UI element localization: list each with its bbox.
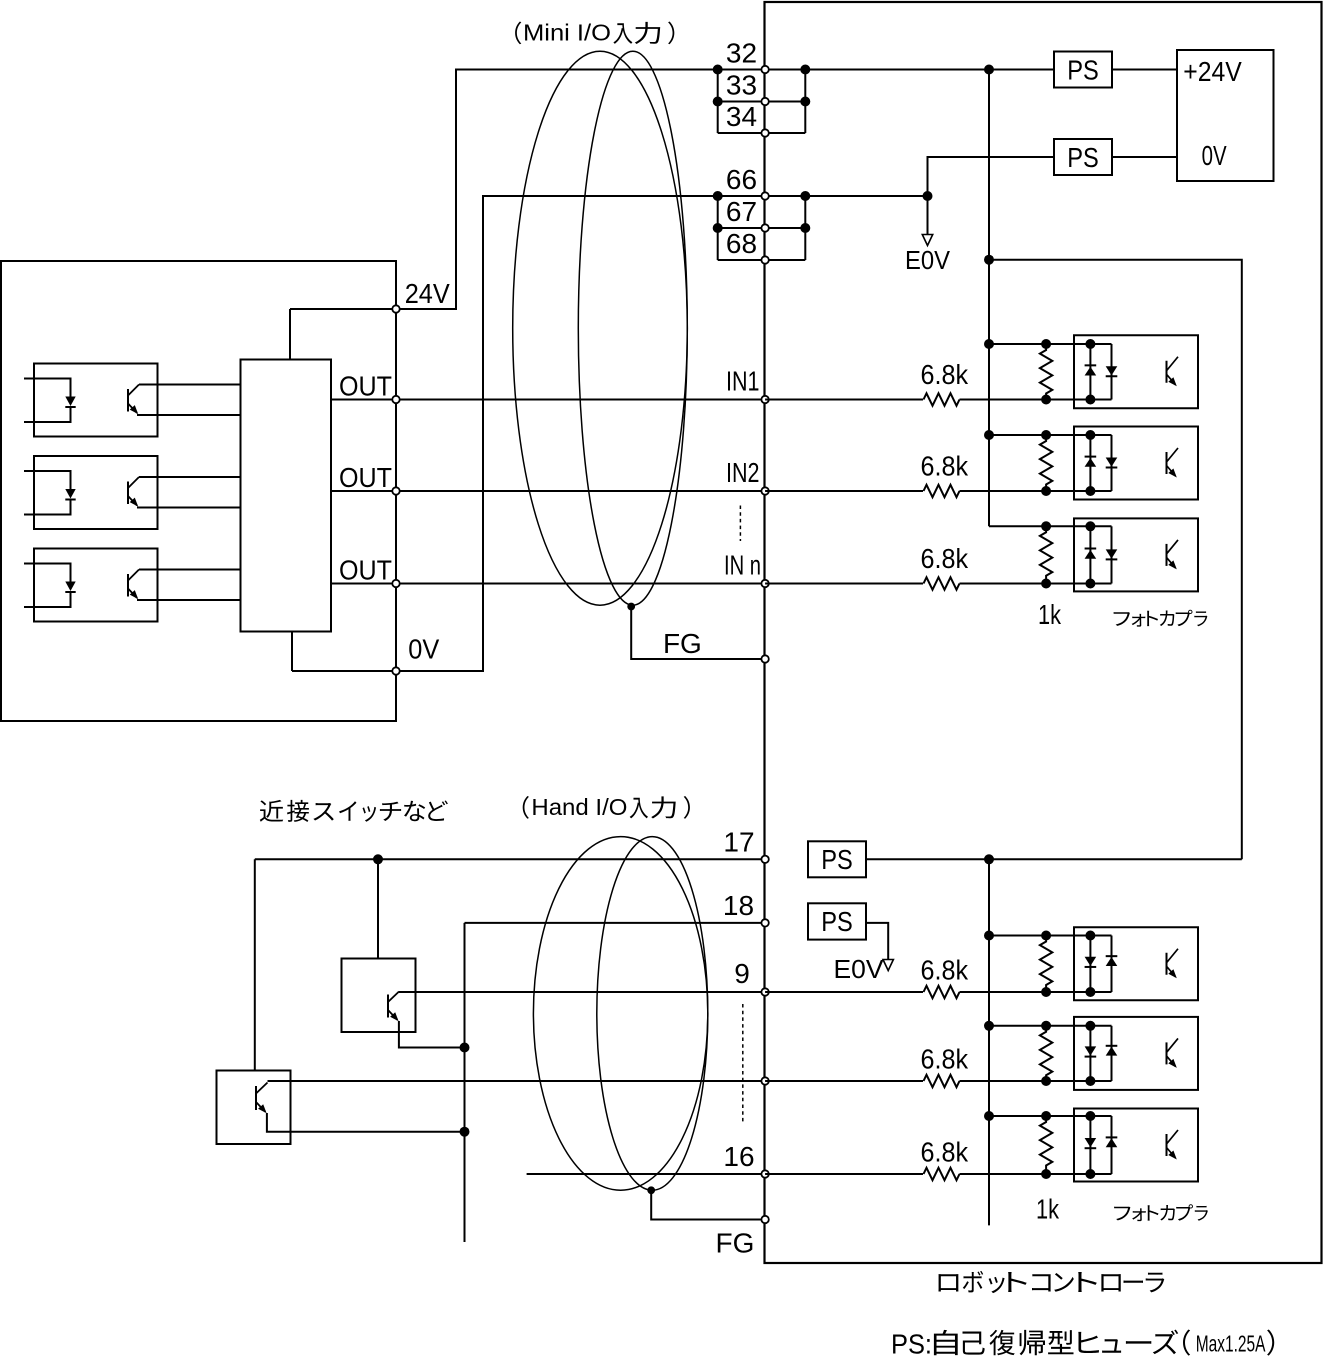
- svg-text:PS: PS: [1067, 54, 1099, 85]
- svg-text:Mini I/O: Mini I/O: [523, 20, 611, 46]
- svg-text:68: 68: [726, 228, 757, 259]
- svg-text:9: 9: [734, 958, 750, 989]
- svg-text:IN2: IN2: [726, 457, 760, 488]
- svg-text:0V: 0V: [1202, 140, 1227, 171]
- svg-text:6.8k: 6.8k: [921, 359, 969, 390]
- svg-text:6.8k: 6.8k: [921, 1137, 969, 1168]
- svg-text:0V: 0V: [408, 634, 439, 665]
- svg-text:PS: PS: [821, 844, 853, 875]
- svg-text:FG: FG: [716, 1228, 755, 1259]
- svg-text:E0V: E0V: [834, 954, 885, 984]
- svg-text:Hand I/O: Hand I/O: [531, 794, 627, 820]
- svg-text:1k: 1k: [1036, 1194, 1060, 1225]
- svg-text:16: 16: [723, 1141, 754, 1172]
- svg-text:24V: 24V: [405, 278, 450, 309]
- svg-text:17: 17: [723, 826, 754, 857]
- svg-text:33: 33: [726, 70, 757, 101]
- svg-text:+24V: +24V: [1183, 56, 1242, 87]
- svg-text:6.8k: 6.8k: [921, 1044, 969, 1075]
- svg-text:6.8k: 6.8k: [921, 451, 969, 482]
- svg-text:E0V: E0V: [905, 245, 951, 275]
- svg-text:32: 32: [726, 38, 757, 69]
- svg-text:OUT: OUT: [339, 462, 392, 493]
- svg-text:OUT: OUT: [339, 371, 392, 402]
- svg-text:67: 67: [726, 196, 757, 227]
- svg-text:1k: 1k: [1038, 599, 1062, 630]
- svg-text:PS: PS: [821, 906, 853, 937]
- svg-text:18: 18: [723, 890, 754, 921]
- svg-text:6.8k: 6.8k: [921, 543, 969, 574]
- svg-text:PS:: PS:: [891, 1329, 932, 1359]
- svg-text:FG: FG: [663, 628, 702, 659]
- svg-text:6.8k: 6.8k: [921, 955, 969, 986]
- svg-text:Max1.25A: Max1.25A: [1196, 1331, 1266, 1357]
- svg-text:PS: PS: [1067, 142, 1099, 173]
- svg-text:34: 34: [726, 101, 757, 132]
- svg-text:OUT: OUT: [339, 555, 392, 586]
- svg-text:66: 66: [726, 164, 757, 195]
- svg-text:IN1: IN1: [726, 366, 760, 397]
- svg-text:IN n: IN n: [724, 550, 761, 581]
